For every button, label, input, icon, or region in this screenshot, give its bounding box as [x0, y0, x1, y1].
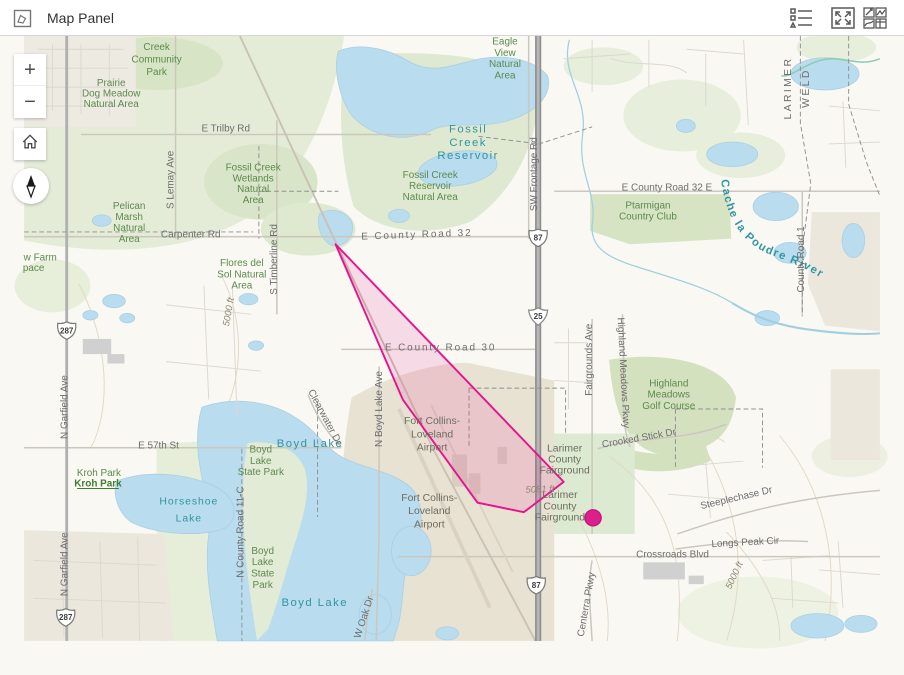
svg-text:25: 25 [534, 312, 543, 321]
svg-text:287: 287 [60, 326, 74, 335]
road-label: Fairgrounds Ave [584, 323, 595, 396]
road-label: Crossroads Blvd [636, 550, 709, 561]
svg-text:287: 287 [59, 613, 73, 622]
svg-text:87: 87 [532, 581, 541, 590]
road-label: E Trilby Rd [201, 124, 250, 135]
home-button[interactable] [14, 128, 46, 160]
compass-needle-icon [13, 168, 49, 204]
water-label: Boyd Lake [281, 597, 347, 609]
road-label: E County Road 30 [385, 342, 496, 353]
road-label: S Lemay Ave [166, 150, 177, 209]
map-panel-icon [13, 9, 32, 28]
park-label: PtarmiganCountry Club [619, 200, 677, 222]
park-label: pace [23, 263, 45, 274]
road-label: E County Road 32 E [622, 182, 713, 193]
contour-label: 5081 ft [525, 484, 555, 496]
map-canvas[interactable]: CreekCommunityPark PrairieDog MeadowNatu… [0, 36, 904, 675]
svg-text:87: 87 [534, 233, 543, 242]
compass-button[interactable] [13, 168, 49, 204]
home-control [14, 128, 46, 160]
park-label: w Farm [23, 252, 57, 263]
road-label: Carpenter Rd [161, 230, 221, 241]
park-label: Kroh Park [77, 468, 121, 479]
road-label: N County Road 11-C [236, 486, 247, 577]
zoom-out-button[interactable]: − [14, 86, 46, 118]
fullscreen-icon[interactable] [830, 6, 856, 30]
point-marker[interactable] [585, 510, 601, 526]
park-label: Kroh Park [74, 479, 122, 490]
basemap: CreekCommunityPark PrairieDog MeadowNatu… [0, 36, 904, 675]
county-label: LARIMER [783, 57, 794, 120]
road-label: County Road 1 [796, 226, 807, 293]
panel-title: Map Panel [47, 10, 114, 26]
map-panel-app: Map Panel [0, 0, 904, 675]
road-label: S Timberline Rd [269, 224, 280, 295]
road-label: E 57th St [138, 441, 179, 452]
zoom-controls: + − [14, 54, 46, 118]
road-label: N Garfield Ave [60, 375, 71, 439]
road-label: N Boyd Lake Ave [374, 371, 385, 447]
widget-gallery-icon[interactable] [862, 6, 888, 30]
park-label: BoydLakeStatePark [251, 546, 275, 591]
park-label: HighlandMeadowsGolf Course [642, 378, 695, 412]
road-label: N Garfield Ave [60, 532, 71, 596]
park-label: Fossil CreekReservoirNatural Area [403, 170, 459, 203]
zoom-in-button[interactable]: + [14, 54, 46, 86]
legend-icon[interactable] [789, 6, 815, 30]
road-label: SW Frontage Rd [529, 137, 540, 211]
panel-header: Map Panel [0, 0, 904, 36]
county-label: WELD [801, 68, 812, 108]
